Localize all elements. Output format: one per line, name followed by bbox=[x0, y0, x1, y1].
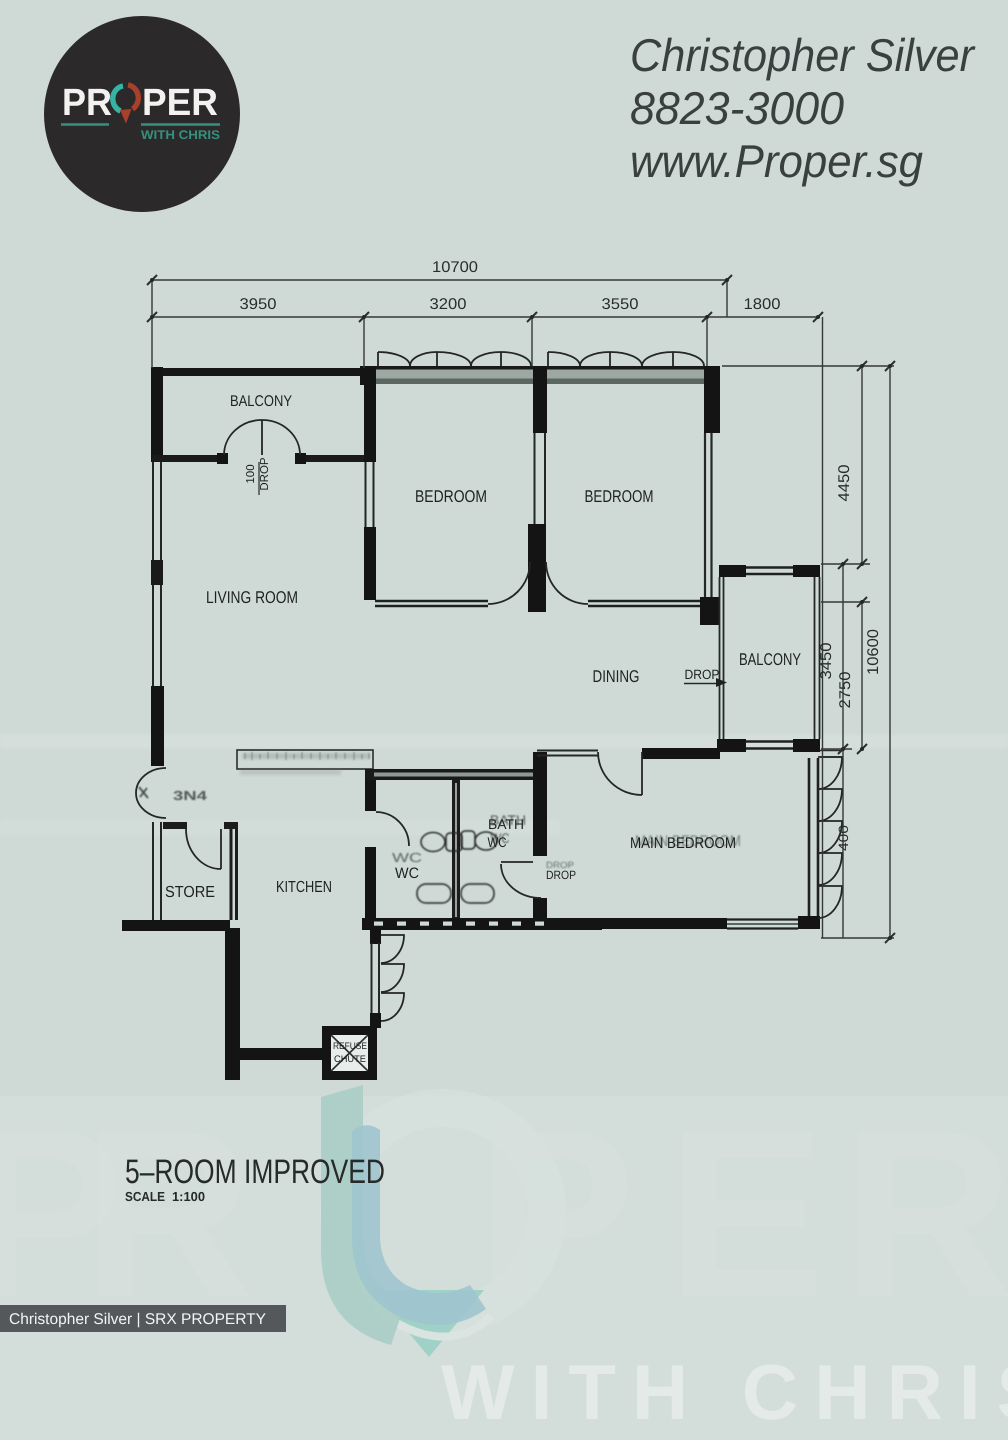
svg-text:100: 100 bbox=[245, 464, 257, 483]
svg-text:PR: PR bbox=[62, 82, 112, 124]
svg-text:CHUTE: CHUTE bbox=[334, 1054, 366, 1065]
svg-text:3550: 3550 bbox=[602, 296, 639, 313]
svg-text:DROP: DROP bbox=[546, 860, 574, 870]
svg-text:Christopher Silver | SRX PROPE: Christopher Silver | SRX PROPERTY bbox=[9, 1311, 266, 1328]
svg-text:5–ROOM IMPROVED: 5–ROOM IMPROVED bbox=[125, 1153, 385, 1191]
svg-text:4450: 4450 bbox=[836, 464, 853, 501]
svg-text:10700: 10700 bbox=[432, 259, 478, 276]
svg-text:BATH: BATH bbox=[490, 812, 526, 828]
svg-text:10600: 10600 bbox=[865, 629, 882, 675]
svg-text:P: P bbox=[477, 1082, 636, 1347]
svg-text:3950: 3950 bbox=[240, 296, 277, 313]
svg-text:DINING: DINING bbox=[593, 667, 640, 686]
svg-text:SCALE: SCALE bbox=[125, 1189, 165, 1204]
svg-text:1800: 1800 bbox=[744, 296, 781, 313]
svg-text:www.Proper.sg: www.Proper.sg bbox=[630, 135, 923, 187]
svg-text:BEDROOM: BEDROOM bbox=[585, 487, 654, 506]
svg-text:BALCONY: BALCONY bbox=[230, 393, 292, 410]
svg-text:REFUSE: REFUSE bbox=[333, 1041, 367, 1052]
svg-text:STORE: STORE bbox=[165, 884, 215, 901]
svg-text:3N4: 3N4 bbox=[173, 788, 208, 803]
svg-text:WC: WC bbox=[491, 830, 510, 846]
svg-text:WC: WC bbox=[395, 865, 419, 882]
svg-text:400: 400 bbox=[836, 825, 851, 851]
svg-text:3450: 3450 bbox=[818, 642, 835, 679]
svg-text:1:100: 1:100 bbox=[172, 1189, 205, 1204]
svg-text:BALCONY: BALCONY bbox=[739, 650, 801, 669]
svg-text:WITH CHRIS: WITH CHRIS bbox=[441, 1348, 1008, 1436]
svg-text:DROP: DROP bbox=[685, 667, 720, 682]
svg-text:WITH CHRIS: WITH CHRIS bbox=[141, 128, 220, 142]
svg-text:R: R bbox=[842, 1082, 1008, 1347]
svg-text:LIVING ROOM: LIVING ROOM bbox=[206, 588, 298, 607]
svg-text:DROP: DROP bbox=[546, 868, 576, 882]
svg-text:2750: 2750 bbox=[837, 671, 854, 708]
svg-text:DROP: DROP bbox=[259, 457, 271, 491]
svg-text:E: E bbox=[667, 1082, 826, 1347]
svg-text:KITCHEN: KITCHEN bbox=[276, 879, 332, 896]
svg-text:Christopher Silver: Christopher Silver bbox=[630, 29, 976, 81]
svg-text:3200: 3200 bbox=[430, 296, 467, 313]
svg-text:MAIN BEDROOM: MAIN BEDROOM bbox=[635, 833, 741, 850]
svg-text:BEDROOM: BEDROOM bbox=[415, 487, 487, 506]
svg-text:WC: WC bbox=[392, 850, 422, 865]
svg-text:8823-3000: 8823-3000 bbox=[630, 82, 844, 134]
svg-text:PER: PER bbox=[142, 82, 218, 124]
